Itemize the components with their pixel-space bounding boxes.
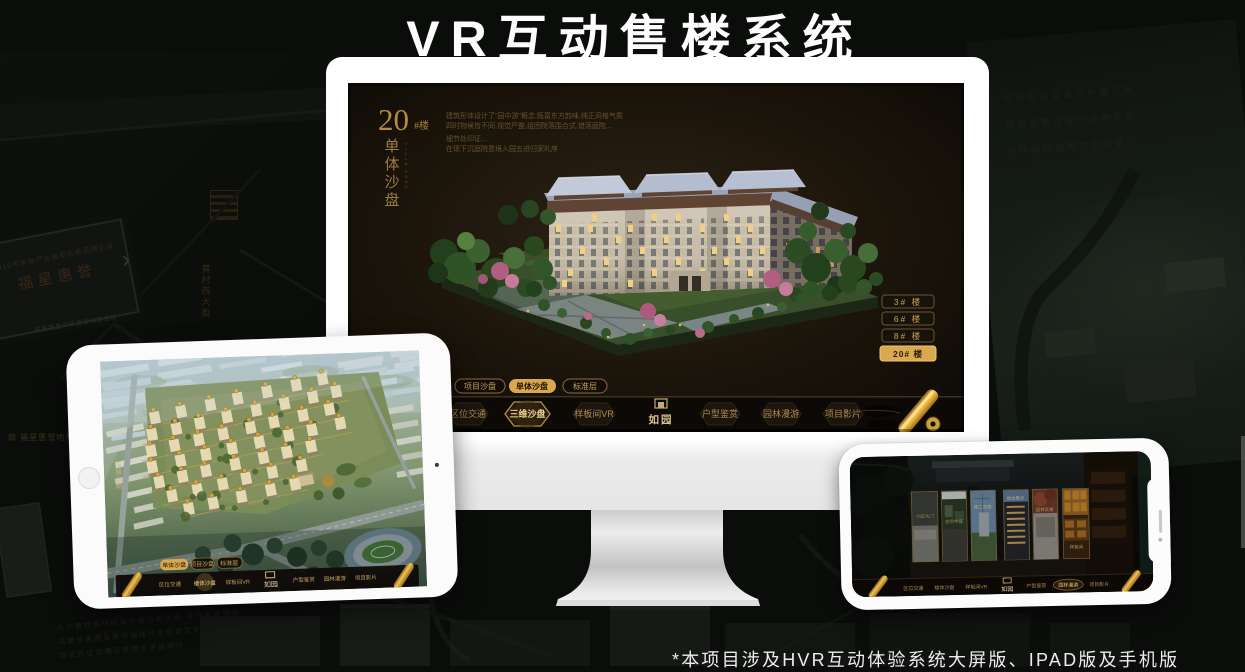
svg-text:在现下沉庭院意境入园五进归家礼序: 在现下沉庭院意境入园五进归家礼序	[446, 144, 558, 153]
svg-text:#楼: #楼	[414, 119, 429, 132]
svg-text:园林漫游: 园林漫游	[763, 408, 799, 419]
svg-text:项目沙盘: 项目沙盘	[464, 381, 496, 391]
svg-text:如园: 如园	[264, 580, 278, 589]
svg-text:如园: 如园	[1001, 585, 1013, 593]
svg-text:6# 楼: 6# 楼	[894, 314, 922, 324]
svg-text:园林漫游: 园林漫游	[1058, 581, 1078, 588]
svg-text:L: L	[405, 157, 407, 161]
svg-text:如园: 如园	[649, 413, 674, 426]
svg-text:沙: 沙	[384, 174, 399, 191]
svg-text:I: I	[405, 147, 406, 151]
svg-text:样板间VR: 样板间VR	[574, 408, 614, 419]
svg-text:户型鉴赏: 户型鉴赏	[702, 408, 738, 419]
svg-text:N: N	[405, 180, 408, 184]
svg-text:体: 体	[384, 156, 399, 173]
svg-text:8# 楼: 8# 楼	[894, 331, 922, 341]
svg-text:楼体沙盘: 楼体沙盘	[934, 584, 954, 591]
svg-text:盘: 盘	[384, 191, 399, 209]
svg-text:D: D	[405, 185, 408, 189]
svg-text:区位交通: 区位交通	[903, 585, 923, 592]
svg-text:单: 单	[384, 138, 399, 155]
svg-text:四时物候皆不同,视觉严整,组团院落围合式,错落庭院...: 四时物候皆不同,视觉严整,组团院落围合式,错落庭院...	[446, 121, 612, 130]
svg-text:标准层: 标准层	[573, 381, 597, 391]
svg-text:20: 20	[378, 102, 409, 137]
svg-text:户型鉴赏: 户型鉴赏	[1026, 582, 1046, 589]
svg-text:建筑形体设计了"园中游"概念:既富东方韵味,纯正风格气质: 建筑形体设计了"园中游"概念:既富东方韵味,纯正风格气质	[446, 111, 623, 120]
svg-text:样板间VR: 样板间VR	[965, 583, 987, 590]
svg-text:细节处印证...: 细节处印证...	[446, 134, 487, 143]
svg-text:项目影片: 项目影片	[825, 408, 861, 419]
svg-text:三维沙盘: 三维沙盘	[509, 408, 545, 419]
svg-text:L: L	[405, 152, 407, 156]
svg-text:3# 楼: 3# 楼	[894, 297, 922, 307]
svg-text:单体沙盘: 单体沙盘	[516, 381, 548, 391]
svg-text:项目影片: 项目影片	[1089, 581, 1109, 588]
svg-text:20# 楼: 20# 楼	[893, 349, 923, 359]
svg-text:区位交通: 区位交通	[450, 408, 486, 419]
